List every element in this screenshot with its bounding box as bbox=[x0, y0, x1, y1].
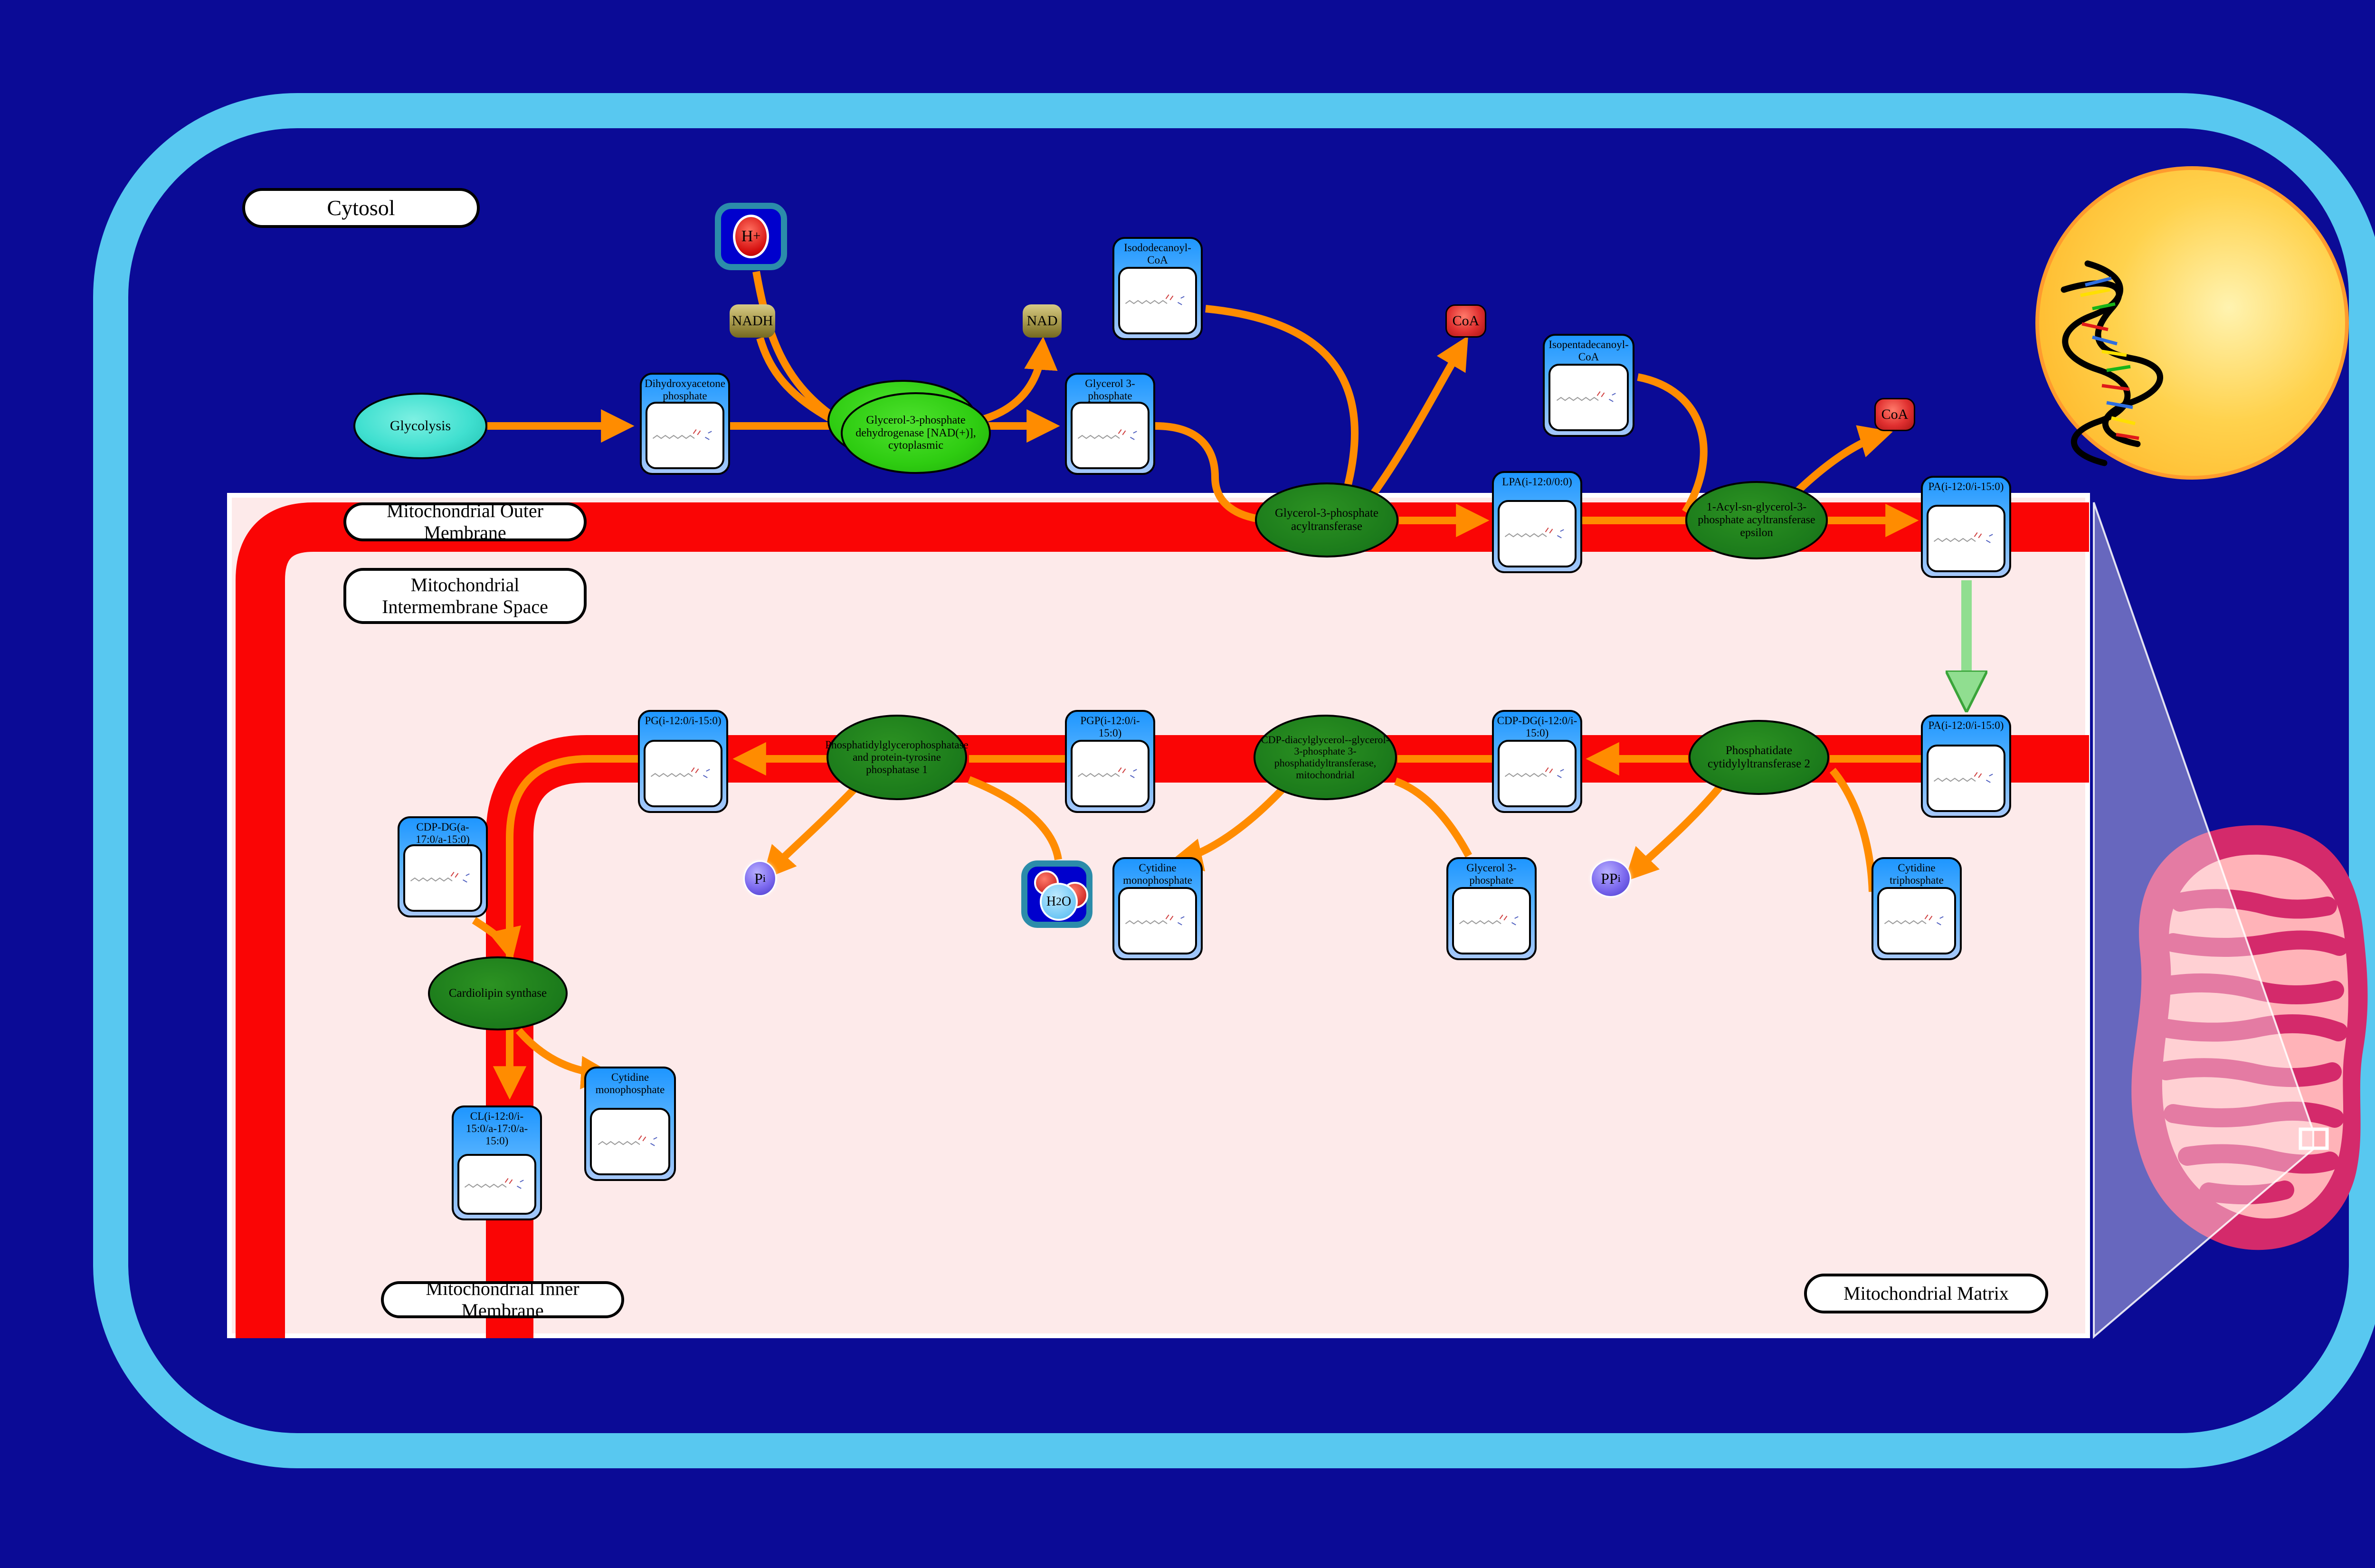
chemical-structure bbox=[647, 753, 719, 794]
cofactor-nad[interactable]: NAD bbox=[1023, 304, 1062, 338]
chemical-structure bbox=[1122, 280, 1193, 321]
metabolite-pgp[interactable]: PGP(i-12:0/i-15:0) bbox=[1065, 710, 1155, 813]
chemical-structure bbox=[1501, 513, 1573, 555]
metabolite-pg[interactable]: PG(i-12:0/i-15:0) bbox=[638, 710, 728, 813]
cofactor-coa-2[interactable]: CoA bbox=[1874, 398, 1915, 431]
metabolite-g3p-matrix[interactable]: Glycerol 3-phosphate bbox=[1446, 857, 1537, 960]
enzyme-node-cls[interactable]: Cardiolipin synthase bbox=[428, 956, 568, 1030]
enzyme-node-pcyt2[interactable]: Phosphatidate cytidylyltransferase 2 bbox=[1689, 720, 1829, 795]
chemical-structure bbox=[1553, 377, 1624, 418]
chemical-structure bbox=[1881, 900, 1952, 942]
metabolite-isopentadecanoyl-coa[interactable]: Isopentadecanoyl-CoA bbox=[1543, 334, 1634, 437]
chemical-structure bbox=[1122, 900, 1193, 942]
cofactor-pi[interactable]: Pi bbox=[743, 860, 777, 897]
compartment-label-matrix: Mitochondrial Matrix bbox=[1804, 1274, 2048, 1313]
cofactor-coa-1[interactable]: CoA bbox=[1445, 304, 1486, 338]
chemical-structure bbox=[1456, 900, 1527, 942]
enzyme-node-ptpmt1[interactable]: Phosphatidylglycerophosphatase and prote… bbox=[826, 715, 967, 800]
chemical-structure bbox=[1074, 753, 1146, 794]
process-node-glycolysis[interactable]: Glycolysis bbox=[353, 393, 487, 459]
compartment-label-intermembrane-space: Mitochondrial Intermembrane Space bbox=[343, 568, 587, 624]
chemical-structure bbox=[1930, 518, 2002, 559]
chemical-structure bbox=[461, 1163, 532, 1205]
enzyme-node-gpd1[interactable]: Glycerol-3-phosphate dehydrogenase [NAD(… bbox=[841, 392, 991, 474]
metabolite-ctp[interactable]: Cytidine triphosphate bbox=[1871, 857, 1962, 960]
cofactor-nadh[interactable]: NADH bbox=[730, 304, 775, 338]
chemical-structure bbox=[407, 857, 478, 899]
metabolite-lpa[interactable]: LPA(i-12:0/0:0) bbox=[1492, 471, 1582, 573]
pathway-connections-layer bbox=[0, 0, 2375, 1568]
mitochondrion-illustration bbox=[2080, 475, 2375, 1377]
inner-membrane-band bbox=[510, 759, 2089, 1338]
compartment-label-outer-membrane: Mitochondrial Outer Membrane bbox=[343, 502, 587, 541]
enzyme-node-pgs1[interactable]: CDP-diacylglycerol--glycerol-3-phosphate… bbox=[1254, 715, 1397, 800]
chemical-structure bbox=[1074, 415, 1146, 456]
proton-icon[interactable]: H+ bbox=[715, 203, 787, 270]
metabolite-pa-outer[interactable]: PA(i-12:0/i-15:0) bbox=[1921, 476, 2011, 578]
metabolite-cl[interactable]: CL(i-12:0/i-15:0/a-17:0/a-15:0) bbox=[452, 1105, 542, 1220]
chemical-structure bbox=[1930, 757, 2002, 799]
water-icon[interactable]: H2O bbox=[1021, 860, 1092, 928]
chemical-structure bbox=[649, 415, 721, 456]
metabolite-cmp-upper[interactable]: Cytidine monophosphate bbox=[1112, 857, 1203, 960]
metabolite-isododecanoyl-coa[interactable]: Isododecanoyl-CoA bbox=[1112, 237, 1203, 340]
compartment-label-inner-membrane: Mitochondrial Inner Membrane bbox=[381, 1281, 624, 1318]
enzyme-node-agpat-epsilon[interactable]: 1-Acyl-sn-glycerol-3-phosphate acyltrans… bbox=[1685, 481, 1828, 559]
enzyme-node-gpat[interactable]: Glycerol-3-phosphate acyltransferase bbox=[1255, 482, 1398, 557]
chemical-structure bbox=[595, 1121, 666, 1162]
chemical-structure bbox=[1501, 753, 1573, 794]
metabolite-dhap[interactable]: Dihydroxyacetone phosphate bbox=[640, 373, 730, 475]
metabolite-g3p-cytosol[interactable]: Glycerol 3-phosphate bbox=[1065, 373, 1155, 475]
compartment-label-cytosol: Cytosol bbox=[242, 188, 480, 228]
metabolite-cmp-lower[interactable]: Cytidine monophosphate bbox=[584, 1067, 676, 1181]
cofactor-ppi[interactable]: PPi bbox=[1590, 860, 1631, 897]
metabolite-cdp-dg-a[interactable]: CDP-DG(a-17:0/a-15:0) bbox=[398, 816, 488, 917]
metabolite-pa-inner[interactable]: PA(i-12:0/i-15:0) bbox=[1921, 715, 2011, 818]
metabolite-cdp-dg-i[interactable]: CDP-DG(i-12:0/i-15:0) bbox=[1492, 710, 1582, 813]
